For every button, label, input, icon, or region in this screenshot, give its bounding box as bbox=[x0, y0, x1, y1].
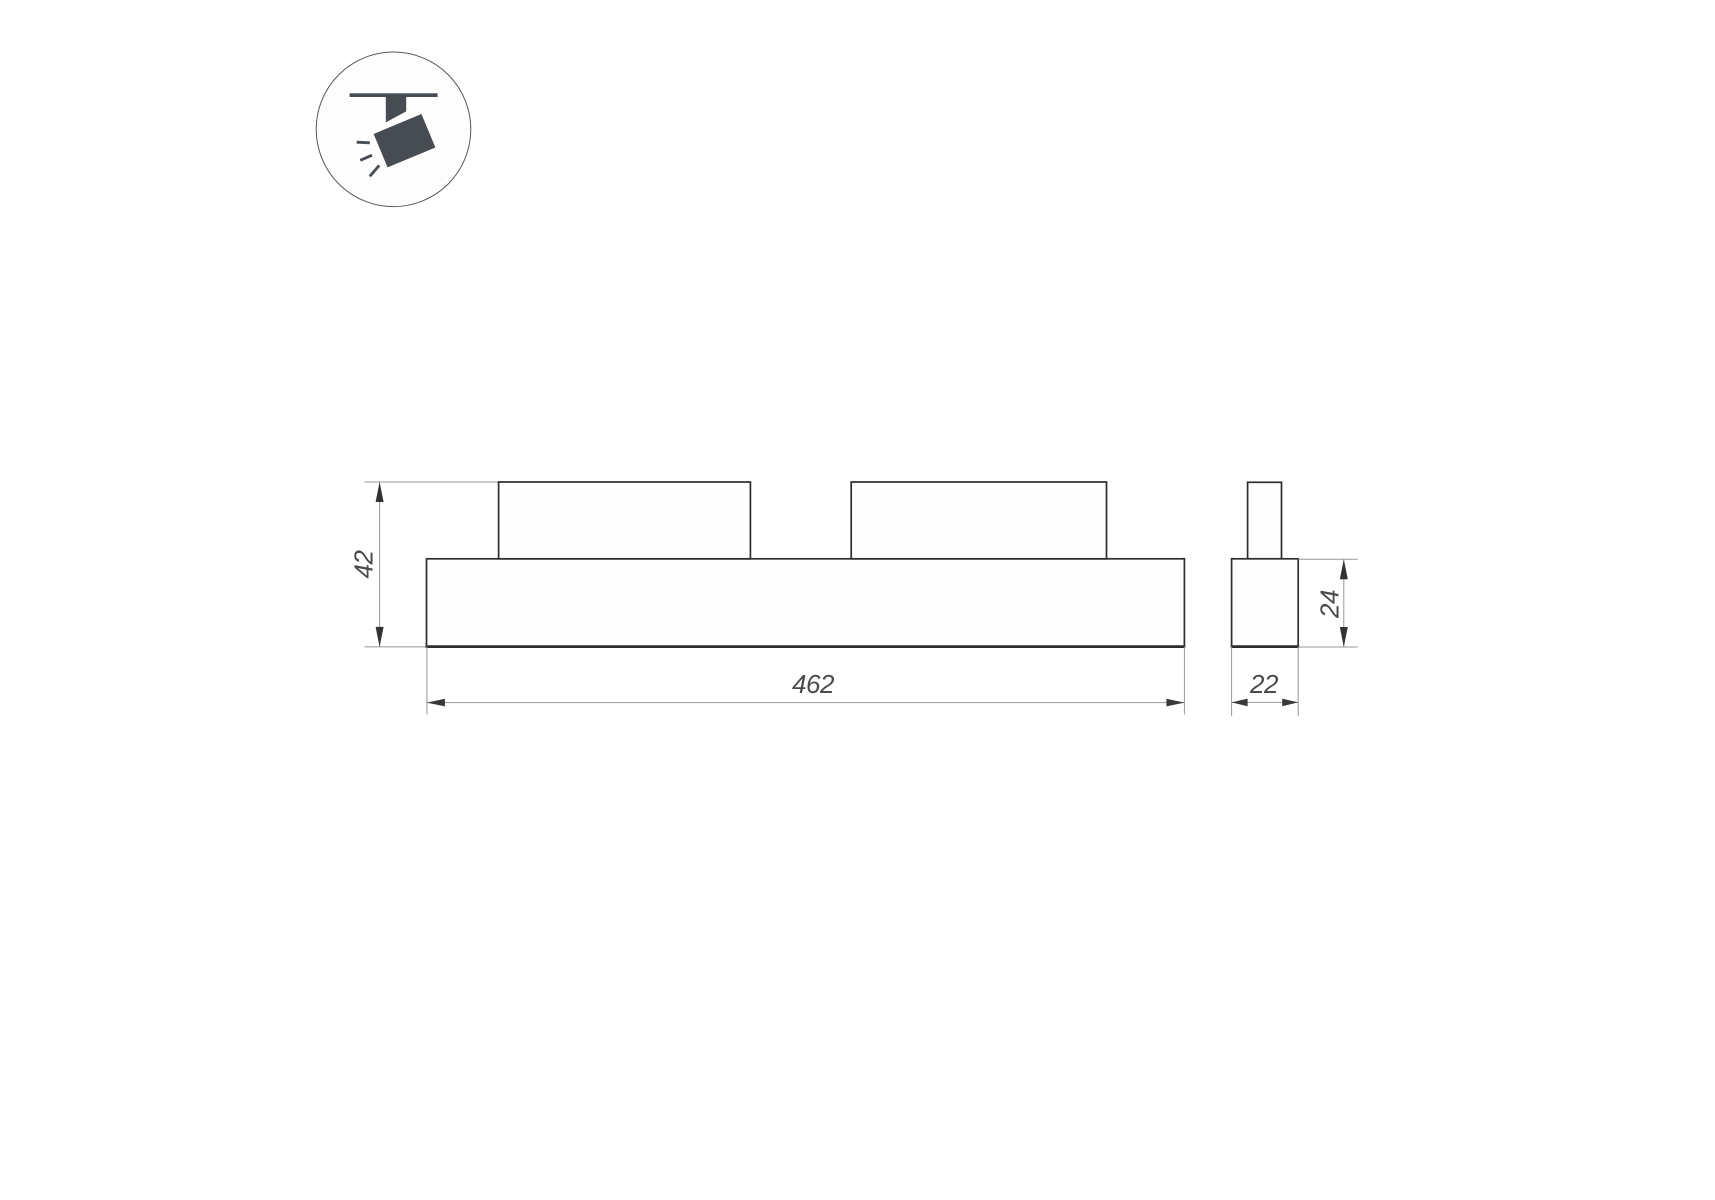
svg-text:24: 24 bbox=[1315, 590, 1345, 619]
svg-text:42: 42 bbox=[349, 550, 379, 579]
svg-text:462: 462 bbox=[792, 669, 835, 699]
svg-text:22: 22 bbox=[1249, 669, 1279, 699]
